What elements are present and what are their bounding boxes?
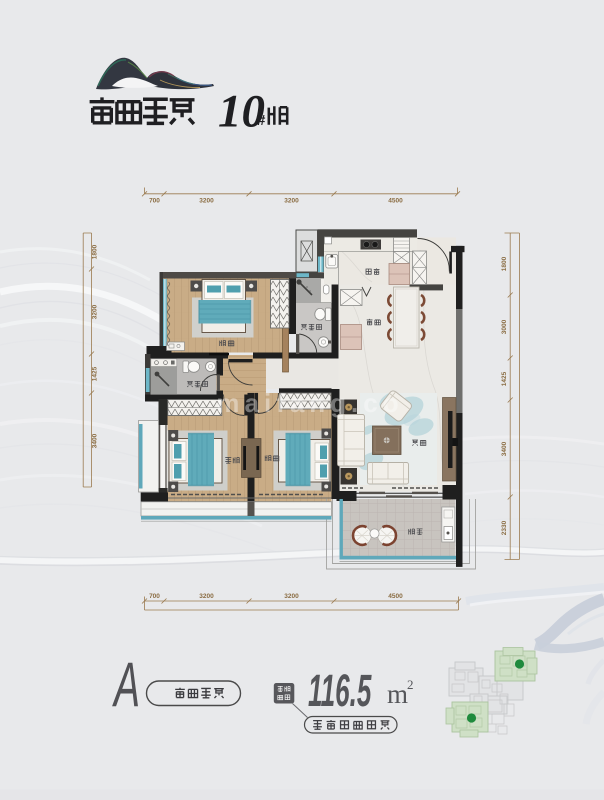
svg-text:2: 2 — [407, 677, 414, 692]
svg-text:1800: 1800 — [92, 244, 99, 259]
svg-text:3000: 3000 — [501, 319, 508, 334]
svg-text:3200: 3200 — [284, 198, 299, 205]
svg-text:116.5: 116.5 — [308, 666, 372, 716]
svg-text:3200: 3200 — [199, 198, 214, 205]
svg-text:1425: 1425 — [92, 366, 99, 381]
svg-text:3200: 3200 — [284, 593, 299, 600]
svg-text:3200: 3200 — [199, 593, 214, 600]
svg-text:1800: 1800 — [501, 256, 508, 271]
svg-text:4500: 4500 — [388, 198, 403, 205]
svg-text:3400: 3400 — [501, 441, 508, 456]
svg-text:#: # — [257, 112, 266, 129]
svg-text:4500: 4500 — [388, 593, 403, 600]
svg-text:A: A — [112, 651, 140, 721]
svg-text:3400: 3400 — [92, 433, 99, 448]
svg-text:maifang.co: maifang.co — [216, 388, 403, 418]
svg-text:700: 700 — [149, 593, 160, 600]
svg-text:2330: 2330 — [501, 520, 508, 535]
svg-text:1425: 1425 — [501, 371, 508, 386]
svg-text:700: 700 — [149, 198, 160, 205]
svg-text:3200: 3200 — [92, 304, 99, 319]
svg-text:m: m — [387, 679, 408, 709]
